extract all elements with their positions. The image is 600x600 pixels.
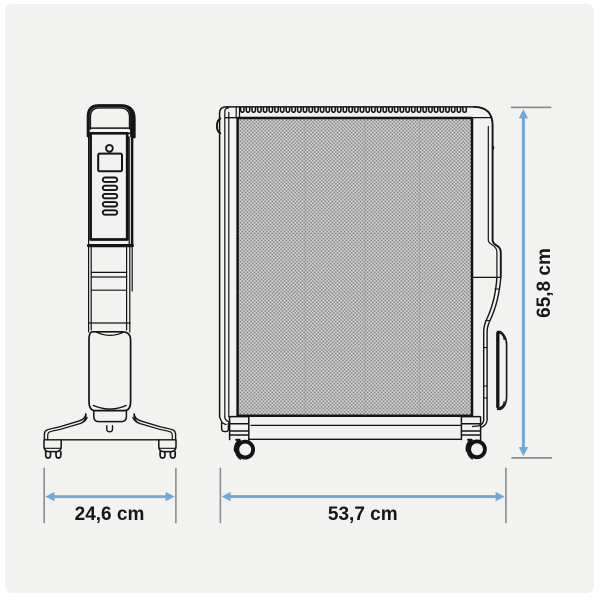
svg-text:24,6 cm: 24,6 cm (75, 504, 145, 525)
svg-text:65,8 cm: 65,8 cm (534, 248, 555, 318)
svg-text:53,7 cm: 53,7 cm (328, 504, 398, 525)
